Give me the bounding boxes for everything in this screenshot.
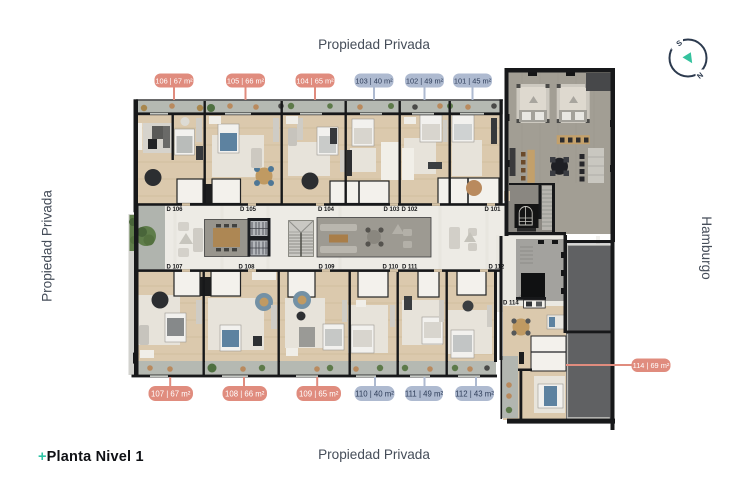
svg-text:D 108: D 108 <box>239 264 256 270</box>
svg-text:D 101: D 101 <box>485 207 502 213</box>
svg-text:Propiedad Privada: Propiedad Privada <box>40 190 55 302</box>
svg-text:D 114: D 114 <box>503 301 519 307</box>
svg-text:106 | 67 m²: 106 | 67 m² <box>155 76 193 85</box>
svg-text:D 105: D 105 <box>240 207 257 213</box>
svg-text:D 102: D 102 <box>402 207 419 213</box>
svg-text:D 110: D 110 <box>383 264 399 270</box>
svg-text:107 | 67 m²: 107 | 67 m² <box>151 389 191 398</box>
svg-text:110 | 40 m²: 110 | 40 m² <box>355 389 394 398</box>
svg-text:105 | 66 m²: 105 | 66 m² <box>227 76 265 85</box>
svg-text:101 | 45 m²: 101 | 45 m² <box>454 76 492 85</box>
svg-text:112 | 43 m²: 112 | 43 m² <box>455 389 494 398</box>
svg-text:D 104: D 104 <box>318 207 335 213</box>
svg-text:D 103: D 103 <box>384 207 401 213</box>
svg-text:Propiedad Privada: Propiedad Privada <box>318 447 430 462</box>
svg-text:Hamburgo: Hamburgo <box>699 216 714 279</box>
svg-text:D 109: D 109 <box>319 264 336 270</box>
svg-text:D 107: D 107 <box>167 264 184 270</box>
svg-text:D 111: D 111 <box>402 264 418 270</box>
svg-text:109 | 65 m²: 109 | 65 m² <box>299 389 339 398</box>
svg-text:103 | 40 m²: 103 | 40 m² <box>355 76 393 85</box>
svg-text:114 | 69 m²: 114 | 69 m² <box>633 361 670 370</box>
svg-text:+Planta Nivel 1: +Planta Nivel 1 <box>38 449 144 465</box>
svg-text:111 | 49 m²: 111 | 49 m² <box>405 389 444 398</box>
svg-text:104 | 65 m²: 104 | 65 m² <box>296 76 334 85</box>
svg-text:Propiedad Privada: Propiedad Privada <box>318 37 430 52</box>
svg-text:102 | 49 m²: 102 | 49 m² <box>406 76 444 85</box>
svg-text:108 | 66 m²: 108 | 66 m² <box>225 389 265 398</box>
svg-text:D 112: D 112 <box>489 264 505 270</box>
svg-text:D 106: D 106 <box>167 207 184 213</box>
